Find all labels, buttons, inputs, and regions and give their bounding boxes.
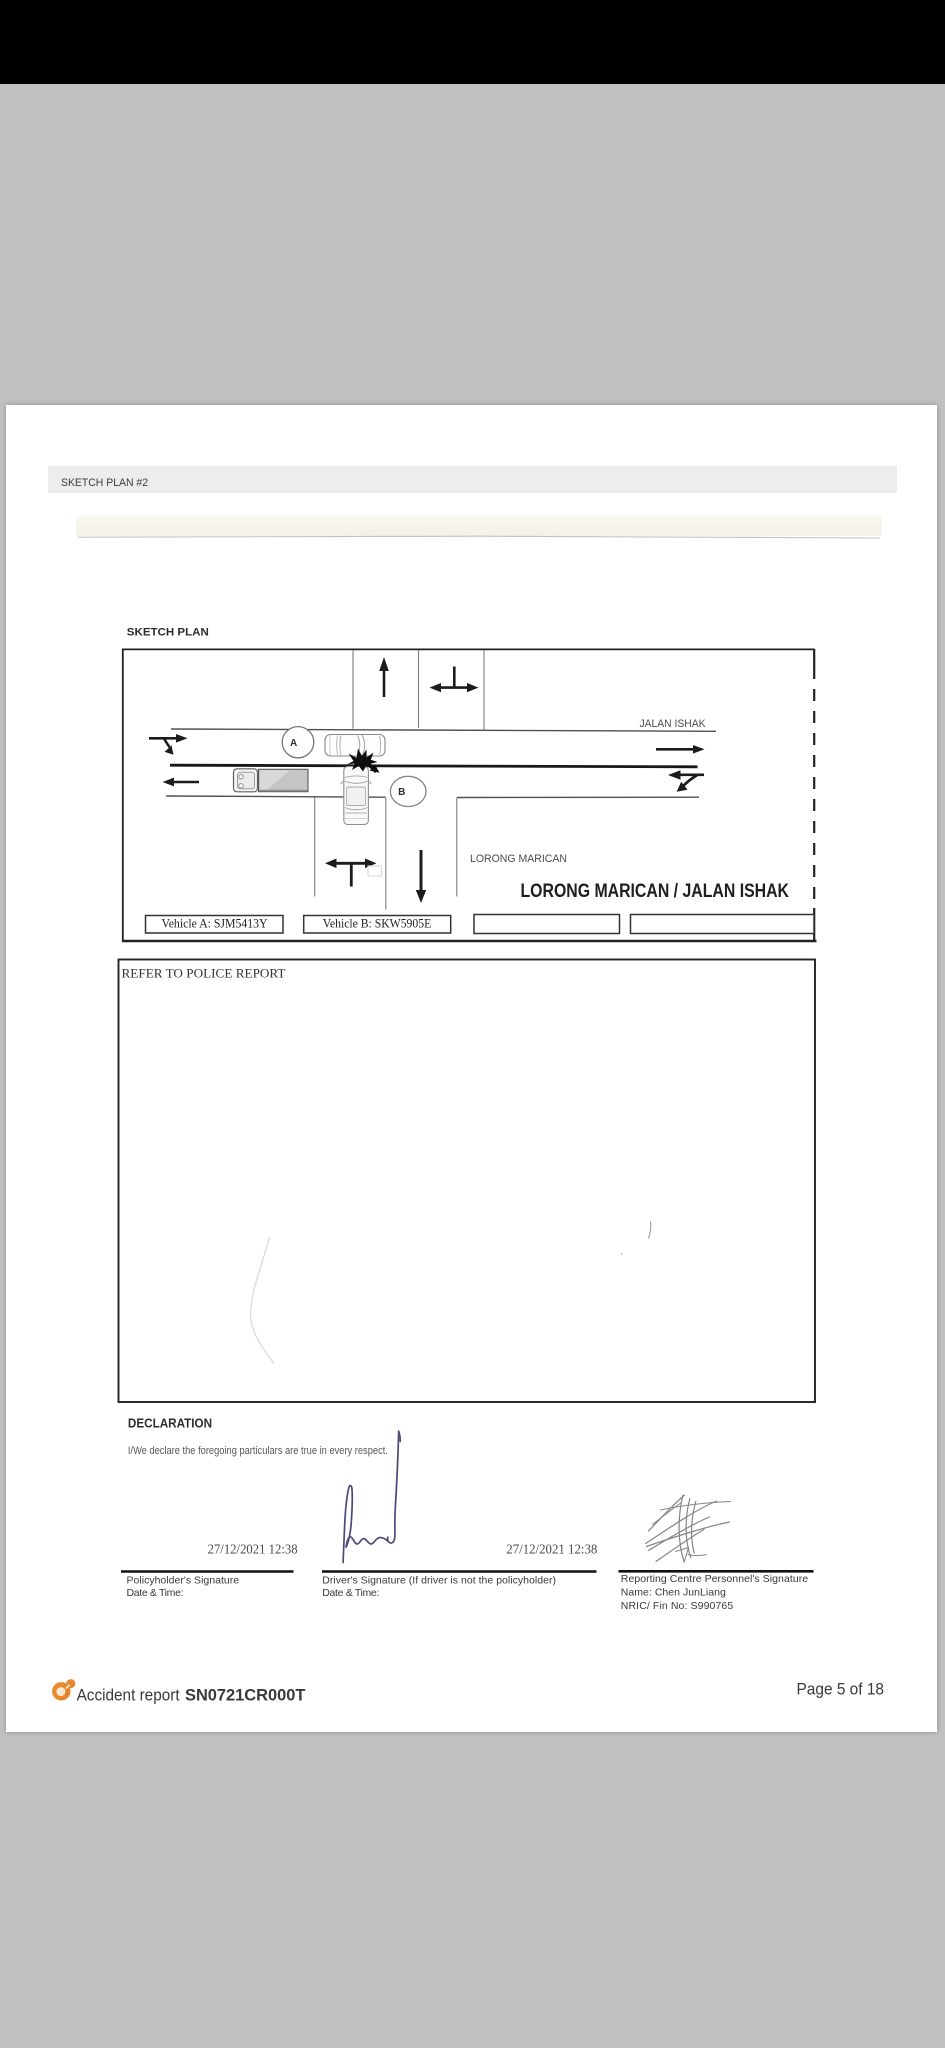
svg-text:REFER TO POLICE REPORT: REFER TO POLICE REPORT [122,966,287,980]
svg-text:Date & Time:: Date & Time: [322,1587,379,1599]
svg-text:B: B [398,787,405,798]
svg-text:Accident report: Accident report [77,1686,180,1704]
svg-text:27/12/2021 12:38: 27/12/2021 12:38 [506,1543,597,1558]
svg-text:Policyholder's Signature: Policyholder's Signature [127,1574,240,1586]
svg-text:DECLARATION: DECLARATION [128,1416,212,1431]
svg-text:NRIC/ Fin No: S990765: NRIC/ Fin No: S990765 [621,1600,734,1612]
svg-text:SN0721CR000T: SN0721CR000T [185,1686,305,1704]
svg-text:SKETCH PLAN: SKETCH PLAN [127,627,209,639]
svg-text:JALAN ISHAK: JALAN ISHAK [640,718,707,730]
svg-text:Vehicle B: SKW5905E: Vehicle B: SKW5905E [323,917,432,931]
svg-text:A: A [290,738,297,749]
svg-text:Vehicle A: SJM5413Y: Vehicle A: SJM5413Y [162,917,268,931]
svg-text:27/12/2021 12:38: 27/12/2021 12:38 [208,1543,298,1558]
svg-text:Driver's Signature (If driver: Driver's Signature (If driver is not the… [322,1574,556,1586]
svg-text:Date & Time:: Date & Time: [127,1587,184,1599]
svg-text:Name: Chen JunLiang: Name: Chen JunLiang [621,1586,726,1598]
svg-text:I/We declare the foregoing par: I/We declare the foregoing particulars a… [128,1445,388,1457]
svg-text:Page 5 of 18: Page 5 of 18 [797,1680,885,1698]
svg-text:LORONG MARICAN / JALAN ISHAK: LORONG MARICAN / JALAN ISHAK [521,881,790,902]
svg-text:LORONG MARICAN: LORONG MARICAN [470,853,567,865]
svg-text:Reporting Centre Personnel's S: Reporting Centre Personnel's Signature [621,1573,808,1585]
svg-text:SKETCH PLAN #2: SKETCH PLAN #2 [61,477,148,489]
